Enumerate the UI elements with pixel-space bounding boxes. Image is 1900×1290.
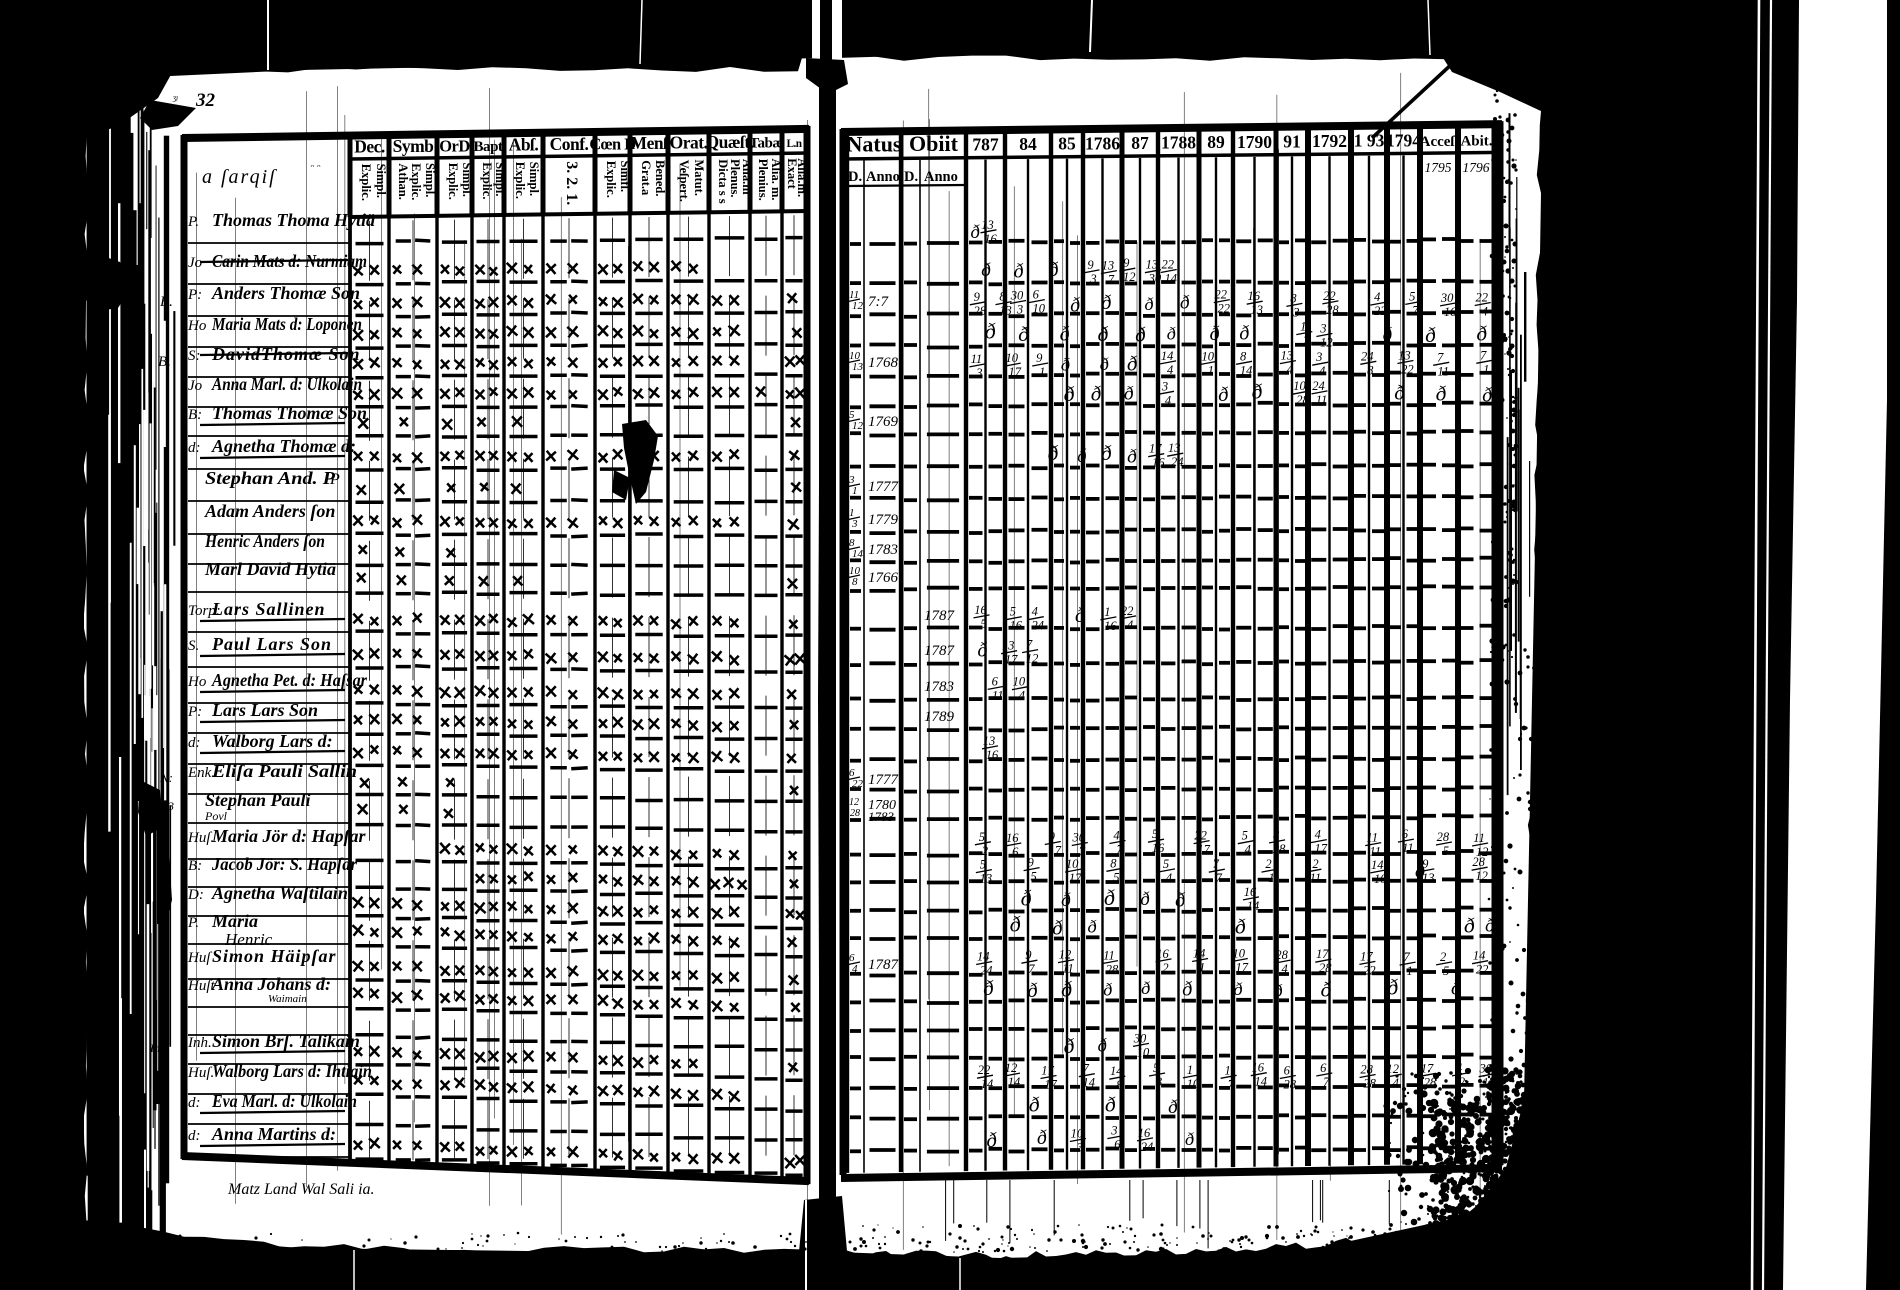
svg-text:13: 13 bbox=[1281, 349, 1294, 363]
svg-text:2: 2 bbox=[1162, 961, 1168, 975]
svg-text:Cœn D: Cœn D bbox=[589, 135, 636, 154]
svg-text:ð: ð bbox=[971, 222, 981, 243]
svg-text:S:: S: bbox=[188, 348, 201, 364]
svg-text:7: 7 bbox=[1083, 1062, 1090, 1076]
svg-text:4: 4 bbox=[1287, 363, 1293, 377]
svg-text:3: 3 bbox=[1016, 303, 1023, 317]
svg-text:1: 1 bbox=[1104, 605, 1110, 619]
svg-text:30: 30 bbox=[1010, 289, 1024, 303]
svg-text:16: 16 bbox=[974, 603, 987, 617]
svg-text:a ſarqiſ: a ſarqiſ bbox=[202, 166, 277, 188]
svg-text:8: 8 bbox=[1116, 1078, 1123, 1092]
svg-text:5: 5 bbox=[980, 617, 986, 631]
svg-text:1: 1 bbox=[1199, 961, 1205, 975]
svg-text:10: 10 bbox=[1137, 1045, 1150, 1059]
svg-text:13: 13 bbox=[1102, 259, 1115, 273]
svg-text:N:: N: bbox=[159, 770, 173, 785]
svg-text:B:: B: bbox=[188, 858, 202, 874]
svg-text:Henric Anders ſon: Henric Anders ſon bbox=[204, 531, 325, 551]
svg-text:1783: 1783 bbox=[868, 809, 895, 824]
svg-text:5: 5 bbox=[1010, 605, 1016, 619]
svg-text:2: 2 bbox=[1265, 857, 1271, 871]
svg-text:8: 8 bbox=[1290, 291, 1297, 305]
svg-text:Lars Sallinen: Lars Sallinen bbox=[211, 599, 326, 619]
svg-text:Walborg Lars d:: Walborg Lars d: bbox=[212, 731, 333, 751]
svg-text:10: 10 bbox=[1033, 302, 1046, 316]
svg-text:ð: ð bbox=[1060, 325, 1070, 346]
svg-text:14: 14 bbox=[1164, 272, 1177, 286]
svg-text:24: 24 bbox=[980, 964, 993, 978]
svg-text:Bapt: Bapt bbox=[474, 139, 503, 155]
svg-text:ð: ð bbox=[1185, 1129, 1194, 1149]
svg-text:6: 6 bbox=[1284, 1064, 1291, 1078]
svg-text:ð: ð bbox=[1064, 382, 1075, 406]
svg-text:7: 7 bbox=[1079, 845, 1086, 859]
svg-text:Anders Thomæ Son: Anders Thomæ Son bbox=[211, 283, 360, 303]
svg-text:7: 7 bbox=[1412, 303, 1419, 317]
svg-text:5: 5 bbox=[1409, 289, 1415, 303]
svg-text:ð: ð bbox=[1061, 890, 1071, 911]
svg-text:4: 4 bbox=[1245, 843, 1251, 857]
svg-text:10: 10 bbox=[1202, 349, 1215, 363]
svg-text:d:: d: bbox=[188, 1095, 201, 1111]
svg-text:Orat.: Orat. bbox=[670, 133, 708, 153]
svg-text:10: 10 bbox=[1066, 857, 1079, 871]
svg-text:17: 17 bbox=[1316, 947, 1329, 961]
svg-text:3: 3 bbox=[1315, 350, 1322, 364]
svg-text:ð: ð bbox=[1451, 977, 1461, 999]
svg-text:d:: d: bbox=[188, 440, 201, 456]
svg-text:6: 6 bbox=[992, 674, 999, 688]
svg-text:Acceſ.: Acceſ. bbox=[1420, 134, 1459, 150]
svg-text:ð: ð bbox=[1482, 385, 1492, 407]
svg-text:P.: P. bbox=[187, 214, 199, 230]
svg-text:32: 32 bbox=[195, 90, 216, 111]
svg-text:10: 10 bbox=[1005, 351, 1018, 365]
svg-text:ð: ð bbox=[1029, 1093, 1040, 1117]
svg-text:ð: ð bbox=[1101, 441, 1112, 465]
svg-text:7: 7 bbox=[1403, 950, 1410, 964]
svg-text:6: 6 bbox=[1320, 1061, 1327, 1075]
svg-text:ð: ð bbox=[1098, 1035, 1107, 1055]
svg-text:d:: d: bbox=[188, 1128, 201, 1144]
svg-text:12: 12 bbox=[1320, 336, 1333, 350]
svg-text:14: 14 bbox=[852, 548, 864, 560]
svg-text:ð: ð bbox=[983, 978, 993, 1000]
svg-text:9: 9 bbox=[1027, 856, 1034, 870]
svg-text:16: 16 bbox=[1138, 1126, 1151, 1140]
svg-text:11: 11 bbox=[1402, 841, 1414, 855]
svg-text:1789: 1789 bbox=[924, 709, 955, 725]
svg-text:7: 7 bbox=[1480, 348, 1487, 362]
svg-text:16: 16 bbox=[1247, 289, 1260, 303]
svg-text:17: 17 bbox=[1008, 365, 1021, 379]
svg-text:28: 28 bbox=[1106, 963, 1119, 977]
svg-text:8: 8 bbox=[1367, 363, 1374, 377]
svg-text:9: 9 bbox=[1025, 948, 1032, 962]
svg-text:84: 84 bbox=[1019, 134, 1037, 154]
svg-text:5: 5 bbox=[1030, 870, 1036, 884]
svg-text:14: 14 bbox=[1473, 949, 1486, 963]
svg-text:1: 1 bbox=[1406, 964, 1412, 978]
svg-text:5: 5 bbox=[1153, 1061, 1159, 1075]
svg-text:17: 17 bbox=[1044, 1078, 1057, 1092]
svg-text:S.: S. bbox=[188, 638, 199, 654]
svg-text:ᵔ ᵔ: ᵔ ᵔ bbox=[310, 161, 320, 175]
svg-text:14: 14 bbox=[1161, 349, 1174, 363]
svg-text:5: 5 bbox=[1242, 829, 1248, 843]
svg-text:14: 14 bbox=[1193, 947, 1206, 961]
svg-text:3: 3 bbox=[1292, 305, 1299, 319]
svg-text:ð: ð bbox=[1048, 441, 1059, 465]
svg-text:16: 16 bbox=[1152, 841, 1165, 855]
svg-text:17: 17 bbox=[1149, 442, 1162, 456]
svg-text:ð: ð bbox=[1127, 447, 1137, 468]
svg-text:Simfl.: Simfl. bbox=[618, 161, 632, 193]
svg-text:Explic.: Explic. bbox=[359, 164, 373, 201]
svg-text:11: 11 bbox=[992, 688, 1004, 702]
svg-text:3: 3 bbox=[851, 518, 858, 530]
svg-text:10: 10 bbox=[1187, 1077, 1200, 1091]
svg-text:Paul Lars Son: Paul Lars Son bbox=[211, 634, 332, 654]
svg-text:1777: 1777 bbox=[868, 772, 900, 788]
svg-text:ð: ð bbox=[1425, 323, 1436, 347]
svg-text:Inh.: Inh. bbox=[187, 1035, 212, 1051]
svg-text:28: 28 bbox=[1319, 961, 1332, 975]
svg-text:Abſ.: Abſ. bbox=[509, 135, 539, 155]
svg-text:Menſ: Menſ bbox=[631, 133, 670, 153]
svg-text:28: 28 bbox=[1275, 948, 1288, 962]
svg-text:P:: P: bbox=[187, 287, 202, 303]
svg-text:Grat.a: Grat.a bbox=[639, 160, 653, 196]
svg-text:Marl David Hytiä: Marl David Hytiä bbox=[204, 559, 336, 579]
svg-text:2: 2 bbox=[1459, 1075, 1465, 1089]
svg-text:ð: ð bbox=[1168, 1097, 1178, 1118]
svg-text:ð: ð bbox=[1037, 1128, 1047, 1149]
svg-text:3: 3 bbox=[1161, 379, 1168, 393]
svg-text:4: 4 bbox=[1315, 828, 1321, 842]
svg-text:3: 3 bbox=[975, 366, 982, 380]
svg-text:1792: 1792 bbox=[1312, 131, 1347, 151]
svg-text:Plenus.: Plenus. bbox=[728, 159, 742, 198]
svg-text:Ho: Ho bbox=[187, 674, 207, 690]
svg-text:5: 5 bbox=[980, 858, 986, 872]
svg-text:10: 10 bbox=[1013, 675, 1026, 689]
svg-text:1 93: 1 93 bbox=[1354, 131, 1385, 151]
svg-text:22: 22 bbox=[1121, 604, 1134, 618]
svg-text:2: 2 bbox=[1303, 334, 1309, 348]
svg-text:ð: ð bbox=[1021, 887, 1032, 911]
svg-text:ð: ð bbox=[1105, 1093, 1116, 1117]
svg-text:Natus: Natus bbox=[846, 132, 901, 157]
svg-text:4: 4 bbox=[1166, 871, 1172, 885]
svg-text:7: 7 bbox=[1437, 350, 1444, 364]
svg-text:ð: ð bbox=[1103, 979, 1112, 999]
svg-text:2: 2 bbox=[982, 844, 988, 858]
svg-text:12: 12 bbox=[1306, 857, 1319, 871]
svg-text:14: 14 bbox=[1240, 363, 1253, 377]
svg-text:L.n: L.n bbox=[786, 138, 802, 150]
svg-text:ð: ð bbox=[1383, 324, 1393, 345]
svg-text:11: 11 bbox=[1437, 364, 1449, 378]
svg-text:Alia.m: Alia.m bbox=[740, 159, 754, 195]
svg-text:6: 6 bbox=[1012, 845, 1019, 859]
svg-text:13: 13 bbox=[1398, 349, 1411, 363]
svg-text:1: 1 bbox=[1039, 365, 1045, 379]
svg-text:ð: ð bbox=[1321, 977, 1332, 1001]
svg-text:22: 22 bbox=[1218, 302, 1231, 316]
svg-text:6: 6 bbox=[1033, 288, 1040, 302]
svg-text:28: 28 bbox=[1326, 303, 1339, 317]
svg-text:8: 8 bbox=[1273, 828, 1280, 842]
svg-text:16: 16 bbox=[1252, 1061, 1265, 1075]
svg-text:B.: B. bbox=[160, 294, 173, 310]
svg-text:13: 13 bbox=[980, 872, 993, 886]
svg-text:ð: ð bbox=[1436, 382, 1447, 406]
svg-text:5: 5 bbox=[1443, 844, 1449, 858]
svg-text:B.: B. bbox=[158, 354, 171, 370]
svg-text:D.: D. bbox=[848, 169, 862, 185]
svg-text:7: 7 bbox=[1216, 871, 1223, 885]
svg-text:22: 22 bbox=[1401, 363, 1414, 377]
svg-text:4: 4 bbox=[1393, 1076, 1399, 1090]
svg-text:9: 9 bbox=[1049, 830, 1056, 844]
svg-text:Jacob Jör: S. Hapſar: Jacob Jör: S. Hapſar bbox=[211, 854, 358, 874]
svg-text:ð: ð bbox=[1028, 980, 1038, 1002]
svg-text:13: 13 bbox=[1168, 441, 1181, 455]
svg-text:1783: 1783 bbox=[924, 679, 954, 695]
svg-text:14: 14 bbox=[1371, 858, 1384, 872]
svg-text:ð: ð bbox=[1014, 261, 1024, 282]
svg-text:Povl: Povl bbox=[204, 809, 228, 823]
svg-text:91: 91 bbox=[1283, 132, 1301, 152]
svg-text:P:: P: bbox=[187, 704, 202, 720]
svg-text:22: 22 bbox=[978, 1063, 991, 1077]
svg-text:17: 17 bbox=[1041, 1064, 1054, 1078]
svg-text:1787: 1787 bbox=[924, 608, 956, 624]
svg-text:Jo: Jo bbox=[188, 378, 203, 394]
svg-text:1: 1 bbox=[1187, 1063, 1193, 1077]
svg-text:85: 85 bbox=[1058, 134, 1076, 154]
svg-text:ð: ð bbox=[1252, 379, 1263, 403]
svg-text:Huſ.: Huſ. bbox=[187, 830, 214, 846]
svg-text:1796: 1796 bbox=[1463, 160, 1490, 175]
svg-text:10: 10 bbox=[1233, 947, 1246, 961]
svg-text:28: 28 bbox=[1296, 393, 1309, 407]
svg-text:8: 8 bbox=[1110, 856, 1117, 870]
svg-text:11: 11 bbox=[1473, 831, 1485, 845]
svg-text:16: 16 bbox=[1152, 456, 1165, 470]
svg-text:ð: ð bbox=[1274, 981, 1283, 1001]
svg-text:11: 11 bbox=[1062, 962, 1074, 976]
svg-text:28: 28 bbox=[1437, 830, 1450, 844]
svg-text:Thomas Thoma Hytiä: Thomas Thoma Hytiä bbox=[212, 210, 375, 230]
svg-text:4: 4 bbox=[852, 963, 858, 975]
svg-text:ð: ð bbox=[1182, 979, 1192, 1001]
svg-text:12: 12 bbox=[1059, 948, 1072, 962]
svg-text:9: 9 bbox=[1123, 256, 1130, 270]
svg-text:4: 4 bbox=[1319, 364, 1325, 378]
svg-text:16: 16 bbox=[1104, 619, 1117, 633]
svg-text:ð: ð bbox=[1239, 322, 1249, 344]
svg-text:3: 3 bbox=[1089, 272, 1096, 286]
svg-text:Anna Johans d:: Anna Johans d: bbox=[211, 974, 331, 994]
svg-text:ð: ð bbox=[985, 319, 996, 344]
svg-text:Simpl.: Simpl. bbox=[374, 164, 388, 198]
svg-text:Huſ: Huſ bbox=[187, 950, 212, 966]
svg-text:12: 12 bbox=[852, 300, 864, 312]
svg-text:30: 30 bbox=[1148, 272, 1162, 286]
svg-text:ð: ð bbox=[1234, 979, 1243, 999]
svg-text:Simpl.: Simpl. bbox=[527, 162, 541, 196]
svg-text:6: 6 bbox=[1402, 827, 1409, 841]
svg-text:Anno: Anno bbox=[866, 169, 900, 185]
svg-text:10: 10 bbox=[1293, 379, 1306, 393]
svg-text:ð: ð bbox=[1018, 322, 1029, 346]
svg-text:Athan.: Athan. bbox=[396, 163, 410, 199]
svg-text:8: 8 bbox=[852, 576, 858, 588]
svg-text:17: 17 bbox=[1005, 653, 1018, 667]
svg-text:24: 24 bbox=[1361, 349, 1374, 363]
svg-text:ð: ð bbox=[1464, 914, 1475, 938]
svg-text:ð: ð bbox=[1061, 355, 1070, 375]
svg-text:Explic.: Explic. bbox=[409, 163, 423, 200]
svg-text:1790: 1790 bbox=[1237, 132, 1272, 152]
svg-text:Maria Jör d: Hapſar: Maria Jör d: Hapſar bbox=[211, 826, 367, 846]
svg-text:ð: ð bbox=[1098, 322, 1109, 346]
svg-text:22: 22 bbox=[852, 778, 864, 790]
svg-text:12: 12 bbox=[852, 420, 864, 432]
svg-text:9: 9 bbox=[1036, 351, 1043, 365]
svg-text:24: 24 bbox=[1171, 455, 1184, 469]
svg-text:5: 5 bbox=[1443, 964, 1449, 978]
svg-text:B:: B: bbox=[188, 407, 202, 423]
svg-text:17: 17 bbox=[1049, 844, 1062, 858]
svg-text:1: 1 bbox=[1208, 363, 1214, 377]
svg-text:Stephan Pauli: Stephan Pauli bbox=[205, 790, 311, 810]
svg-text:7: 7 bbox=[1323, 1075, 1330, 1089]
svg-text:30: 30 bbox=[1133, 1031, 1147, 1045]
svg-text:ð: ð bbox=[1387, 976, 1398, 1000]
svg-text:3: 3 bbox=[1110, 1124, 1117, 1138]
svg-text:30: 30 bbox=[1072, 831, 1086, 845]
svg-text:ð: ð bbox=[1061, 977, 1072, 1002]
svg-text:13: 13 bbox=[852, 361, 864, 373]
svg-text:3: 3 bbox=[1319, 322, 1326, 336]
svg-text:16: 16 bbox=[1444, 305, 1457, 319]
svg-text:Maria Mats d: Loponen: Maria Mats d: Loponen bbox=[211, 314, 362, 334]
svg-text:4: 4 bbox=[1374, 290, 1380, 304]
svg-text:12: 12 bbox=[849, 797, 859, 808]
svg-text:1794: 1794 bbox=[1386, 130, 1421, 150]
svg-text:ð: ð bbox=[1477, 322, 1488, 346]
svg-text:ð: ð bbox=[1235, 915, 1246, 939]
svg-text:Abit.: Abit. bbox=[1460, 134, 1492, 150]
svg-text:Obiit: Obiit bbox=[909, 131, 959, 156]
svg-text:1769: 1769 bbox=[868, 414, 899, 430]
svg-text:ð: ð bbox=[1091, 384, 1102, 406]
svg-text:Eva Marl. d: Ulkolain: Eva Marl. d: Ulkolain bbox=[211, 1091, 357, 1111]
svg-text:14: 14 bbox=[1247, 899, 1260, 913]
svg-text:22: 22 bbox=[1194, 829, 1207, 843]
svg-text:9: 9 bbox=[1087, 258, 1094, 272]
svg-text:Enk.: Enk. bbox=[187, 765, 215, 781]
svg-text:22: 22 bbox=[1475, 291, 1488, 305]
svg-text:13: 13 bbox=[1146, 258, 1159, 272]
svg-text:14: 14 bbox=[977, 950, 990, 964]
svg-text:1779: 1779 bbox=[868, 512, 899, 528]
svg-text:ð: ð bbox=[1088, 917, 1097, 937]
svg-text:Dec.: Dec. bbox=[354, 137, 385, 157]
svg-text:13: 13 bbox=[999, 304, 1012, 318]
svg-text:2: 2 bbox=[1440, 950, 1446, 964]
svg-text:22: 22 bbox=[1161, 258, 1174, 272]
svg-text:11: 11 bbox=[1366, 831, 1378, 845]
svg-text:5: 5 bbox=[1113, 870, 1119, 884]
svg-text:Simpl.: Simpl. bbox=[423, 163, 437, 197]
svg-text:Eliſa Pauli Sallin: Eliſa Pauli Sallin bbox=[211, 761, 357, 781]
svg-text:P.: P. bbox=[187, 915, 199, 931]
svg-text:ð: ð bbox=[1064, 1034, 1075, 1058]
svg-text:7: 7 bbox=[1213, 857, 1220, 871]
svg-text:7: 7 bbox=[1227, 1077, 1234, 1091]
svg-text:14: 14 bbox=[981, 1077, 994, 1091]
svg-text:16: 16 bbox=[1244, 885, 1257, 899]
svg-text:8: 8 bbox=[999, 290, 1006, 304]
svg-text:4: 4 bbox=[1281, 962, 1287, 976]
svg-text:5: 5 bbox=[1163, 857, 1169, 871]
svg-text:Waimain: Waimain bbox=[268, 993, 307, 1005]
svg-text:16: 16 bbox=[1009, 619, 1022, 633]
svg-text:11: 11 bbox=[1369, 845, 1381, 859]
svg-text:ð: ð bbox=[1141, 978, 1150, 998]
svg-text:24: 24 bbox=[1032, 619, 1045, 633]
svg-text:17: 17 bbox=[1236, 961, 1249, 975]
svg-text:Dicta s s: Dicta s s bbox=[716, 159, 730, 204]
svg-text:Inh: Inh bbox=[149, 1041, 166, 1055]
svg-text:Alia. m.: Alia. m. bbox=[769, 159, 783, 201]
svg-text:87: 87 bbox=[1131, 133, 1149, 153]
svg-text:ð: ð bbox=[1100, 354, 1109, 374]
svg-text:Explic.: Explic. bbox=[604, 161, 618, 198]
svg-text:1783: 1783 bbox=[868, 542, 898, 558]
svg-text:Bened.: Bened. bbox=[653, 160, 667, 196]
svg-text:ð: ð bbox=[1077, 447, 1086, 467]
svg-text:1: 1 bbox=[852, 485, 858, 497]
svg-text:16: 16 bbox=[1156, 947, 1169, 961]
svg-text:4: 4 bbox=[1113, 829, 1119, 843]
svg-text:Explic.: Explic. bbox=[480, 162, 494, 199]
svg-text:13: 13 bbox=[162, 799, 174, 813]
svg-text:Ho: Ho bbox=[187, 318, 207, 334]
svg-text:Maria: Maria bbox=[211, 911, 258, 931]
svg-text:22: 22 bbox=[1374, 304, 1387, 318]
svg-text:Anna Marl. d: Ulkolain: Anna Marl. d: Ulkolain bbox=[211, 374, 362, 394]
svg-text:14: 14 bbox=[1083, 1076, 1096, 1090]
svg-text:4: 4 bbox=[1127, 618, 1133, 632]
svg-text:1795: 1795 bbox=[1425, 160, 1452, 175]
svg-text:1787: 1787 bbox=[924, 643, 956, 659]
svg-text:16: 16 bbox=[986, 748, 999, 762]
svg-text:9: 9 bbox=[974, 290, 981, 304]
svg-text:5: 5 bbox=[1152, 827, 1158, 841]
svg-text:1786: 1786 bbox=[1085, 133, 1120, 153]
svg-text:10: 10 bbox=[1071, 1127, 1084, 1141]
svg-text:ð: ð bbox=[1415, 861, 1425, 883]
svg-text:11: 11 bbox=[1316, 393, 1328, 407]
svg-text:Simon Häipſar: Simon Häipſar bbox=[212, 946, 337, 966]
svg-text:14: 14 bbox=[1008, 1075, 1021, 1089]
